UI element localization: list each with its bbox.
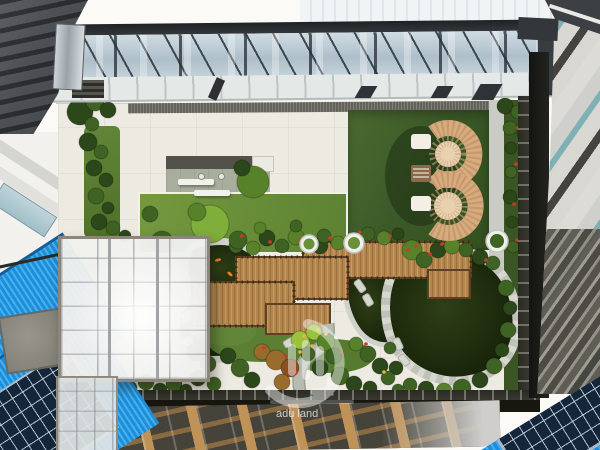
pavilion-beam (108, 239, 111, 379)
watermark-text: adu land (276, 408, 318, 420)
plant-cluster (392, 228, 404, 240)
corridor-roof-block (517, 17, 558, 41)
plant-cluster (229, 231, 247, 249)
plant-cluster (254, 222, 266, 234)
plant-cluster (503, 301, 517, 315)
round-planter (486, 230, 508, 252)
plant-cluster (503, 121, 517, 135)
plant-cluster (486, 358, 502, 374)
plant-cluster (275, 239, 289, 253)
plant-cluster (94, 145, 108, 159)
flower-red (414, 244, 418, 248)
plant-cluster (459, 243, 473, 257)
tower-louver-band (536, 229, 600, 394)
glass-pavilion (58, 236, 210, 382)
plant-cluster (86, 160, 102, 176)
flower-red (328, 236, 332, 240)
flower-red (406, 248, 410, 252)
aerial-rooftop-garden-photo: adu land (0, 0, 600, 450)
corridor-glass-panels (52, 30, 554, 77)
pavilion-beam (156, 239, 159, 379)
plant-cluster (331, 236, 345, 250)
plant-cluster (495, 343, 509, 357)
plant-cluster (85, 117, 99, 131)
plant-cluster (290, 220, 302, 232)
rattan-pod (385, 126, 476, 233)
plant-cluster (142, 206, 158, 222)
plant-cluster (506, 216, 518, 228)
pod-cushion (411, 196, 431, 211)
plant-cluster (486, 256, 500, 270)
flower-red (512, 202, 516, 206)
flower-red (240, 234, 244, 238)
plant-cluster (234, 160, 250, 176)
round-planter (300, 235, 318, 253)
plant-cluster (472, 372, 488, 388)
flower-red (358, 230, 362, 234)
flower-red (484, 258, 488, 262)
flower-red (428, 252, 432, 256)
flower-red (388, 234, 392, 238)
watermark: adu land (240, 318, 400, 428)
metal-vent (52, 23, 85, 90)
round-planter (344, 233, 364, 253)
flower-red (268, 240, 272, 244)
plant-cluster (88, 188, 104, 204)
pod-cushion (411, 134, 431, 149)
plant-cluster (503, 190, 517, 204)
plant-cluster (317, 229, 331, 243)
flower-red (440, 242, 444, 246)
watermark-subtext-bar (270, 400, 354, 404)
plant-cluster (246, 241, 260, 255)
lower-canopy (56, 376, 118, 450)
plant-cluster (498, 280, 514, 296)
deck-section (428, 270, 470, 298)
plant-cluster (91, 214, 107, 230)
plant-cluster (102, 202, 114, 214)
plant-cluster (500, 322, 516, 338)
plant-cluster (377, 231, 391, 245)
watermark-logo (270, 324, 340, 403)
plant-cluster (99, 173, 113, 187)
plant-cluster (188, 203, 206, 221)
plant-cluster (79, 133, 97, 151)
plant-cluster (505, 166, 517, 178)
plant-cluster (106, 221, 120, 235)
plant-cluster (100, 102, 116, 118)
plant-cluster (505, 142, 517, 154)
